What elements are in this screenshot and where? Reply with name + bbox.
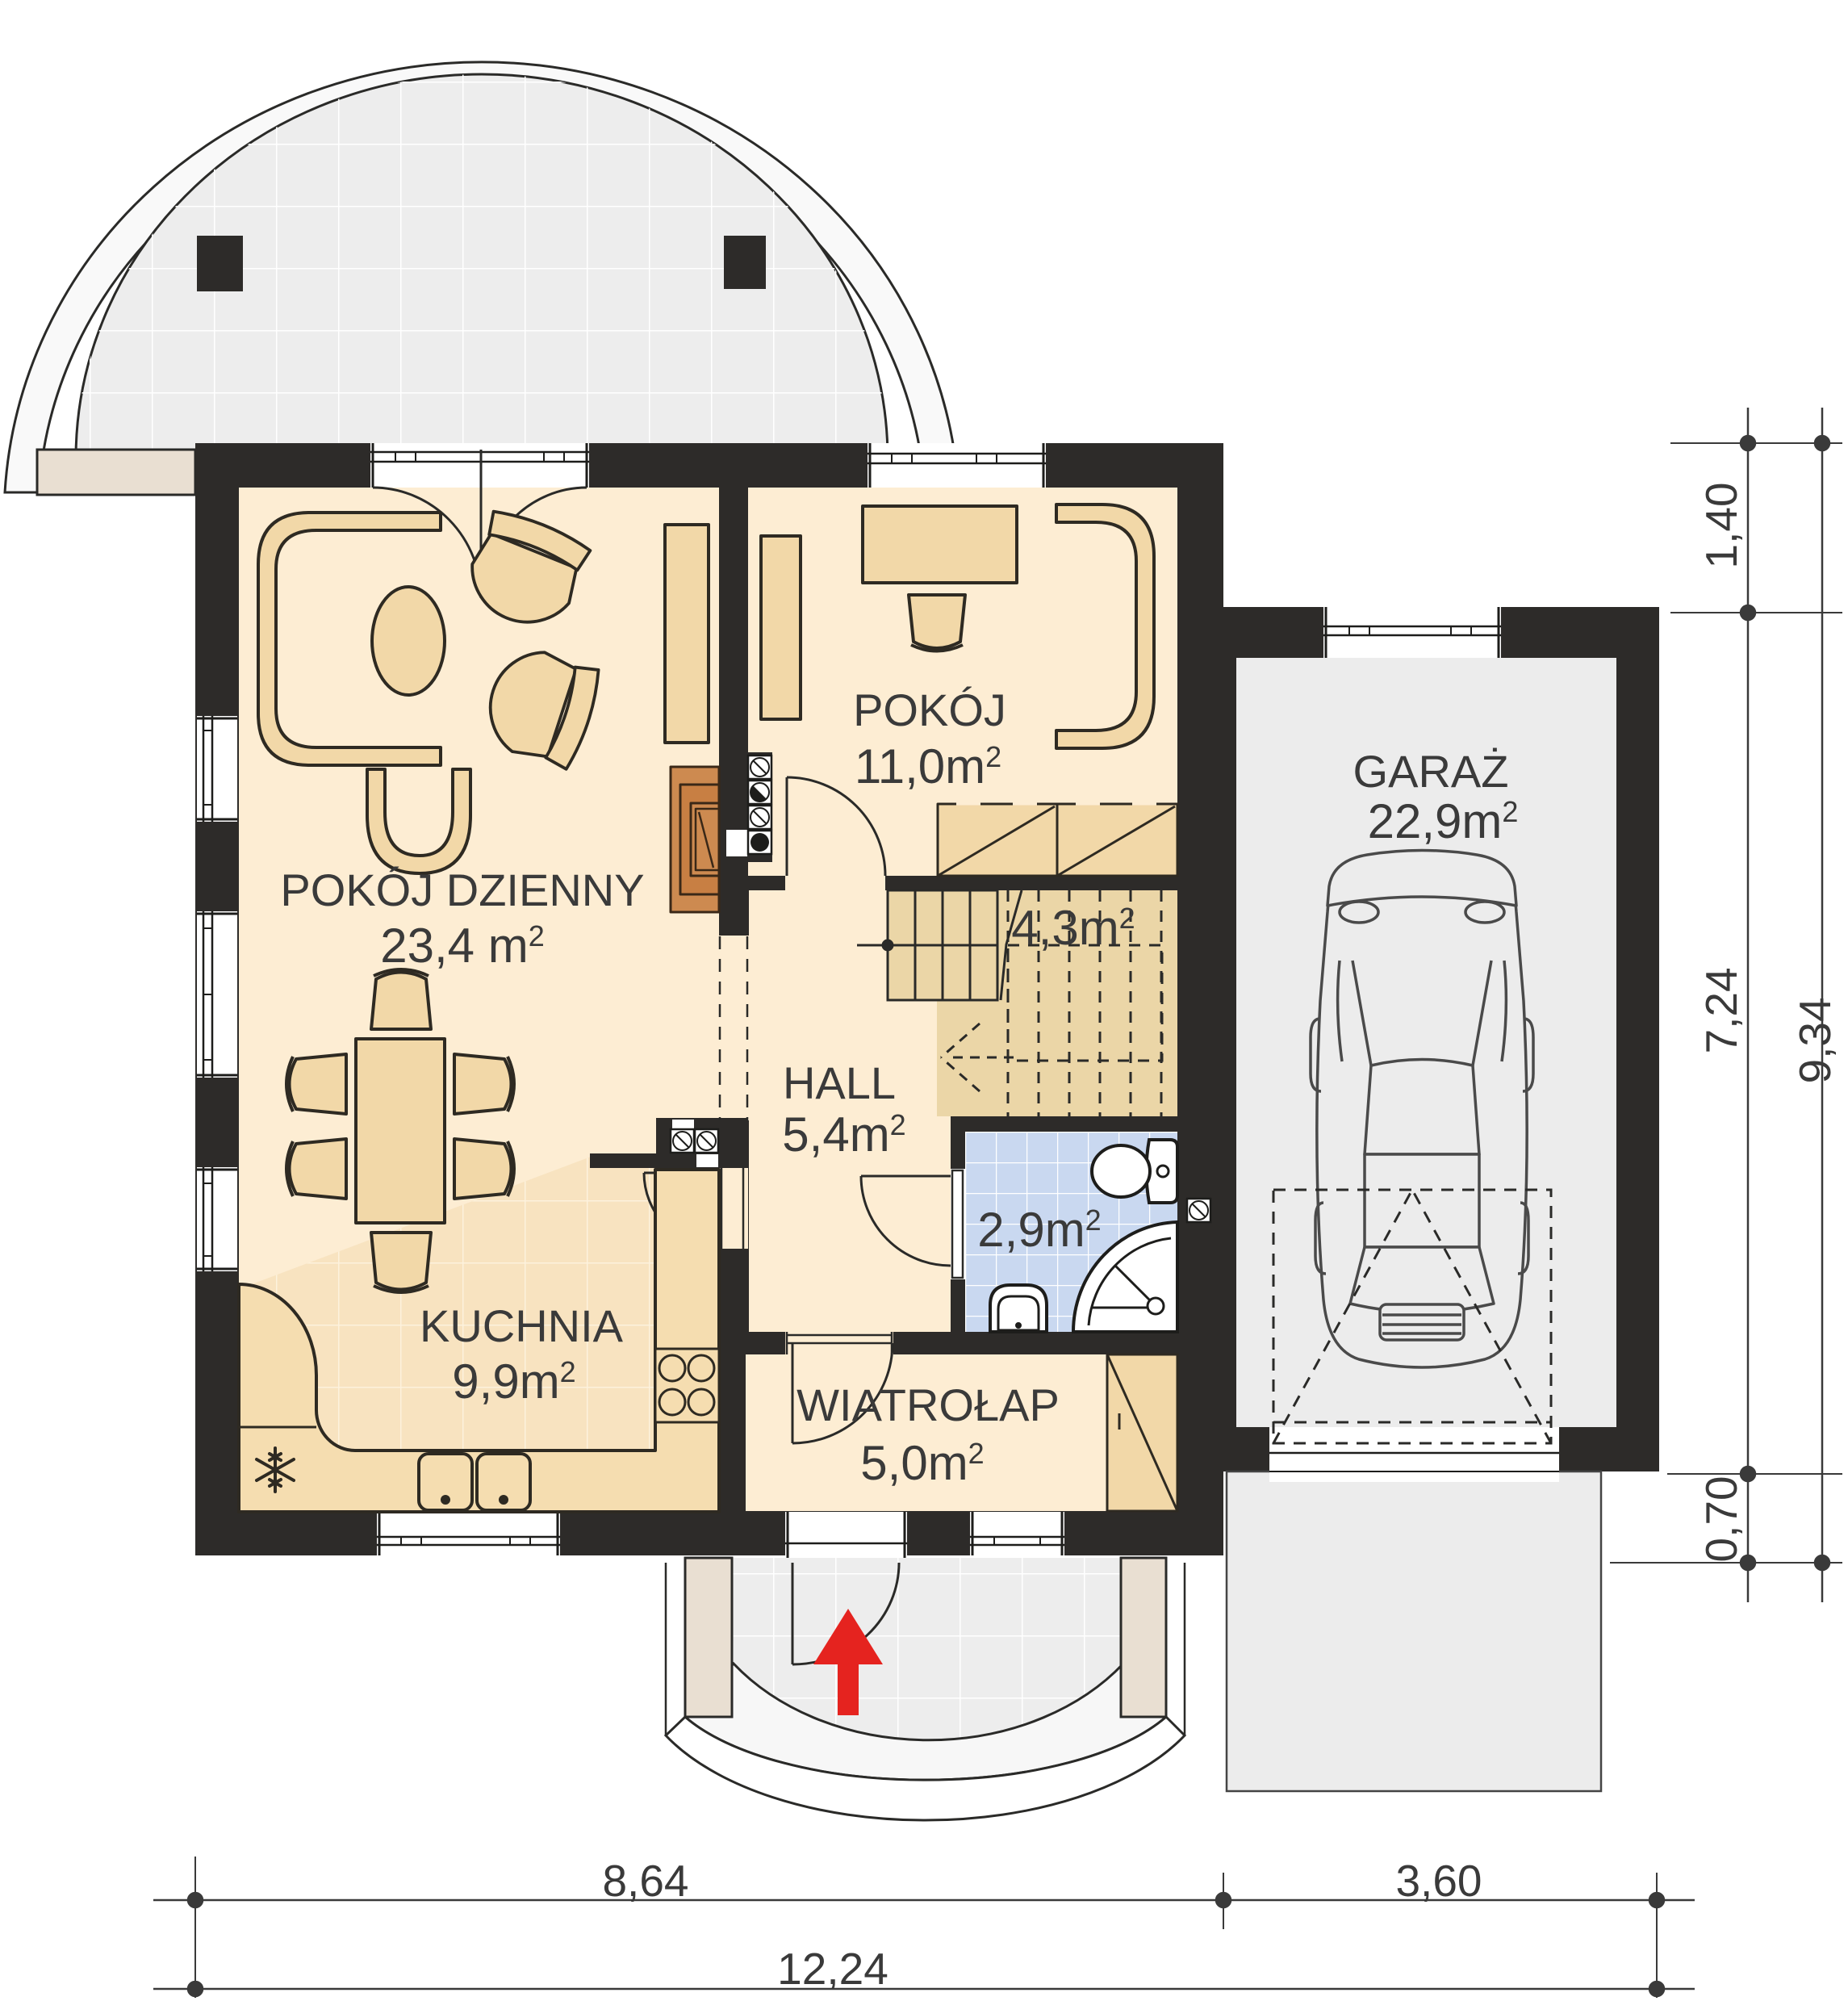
svg-text:23,4 m2: 23,4 m2 <box>380 919 544 973</box>
svg-text:0,70: 0,70 <box>1696 1476 1746 1562</box>
svg-text:HALL: HALL <box>783 1057 896 1108</box>
svg-text:2,9m2: 2,9m2 <box>977 1203 1101 1257</box>
svg-text:POKÓJ DZIENNY: POKÓJ DZIENNY <box>280 864 644 915</box>
svg-text:9,34: 9,34 <box>1790 997 1840 1083</box>
svg-text:4,3m2: 4,3m2 <box>1011 901 1135 955</box>
svg-text:7,24: 7,24 <box>1696 967 1746 1053</box>
svg-text:5,4m2: 5,4m2 <box>782 1107 905 1162</box>
svg-text:11,0m2: 11,0m2 <box>855 739 1001 793</box>
svg-text:KUCHNIA: KUCHNIA <box>420 1300 624 1351</box>
svg-text:5,0m2: 5,0m2 <box>860 1436 984 1490</box>
svg-text:12,24: 12,24 <box>777 1944 888 1994</box>
svg-text:8,64: 8,64 <box>602 1856 688 1906</box>
svg-text:1,40: 1,40 <box>1696 482 1746 568</box>
svg-text:22,9m2: 22,9m2 <box>1368 794 1519 848</box>
svg-text:GARAŻ: GARAŻ <box>1353 746 1509 797</box>
svg-text:WIATROŁAP: WIATROŁAP <box>796 1379 1060 1430</box>
svg-text:3,60: 3,60 <box>1395 1856 1482 1906</box>
svg-text:POKÓJ: POKÓJ <box>853 684 1006 735</box>
svg-text:9,9m2: 9,9m2 <box>452 1354 575 1409</box>
